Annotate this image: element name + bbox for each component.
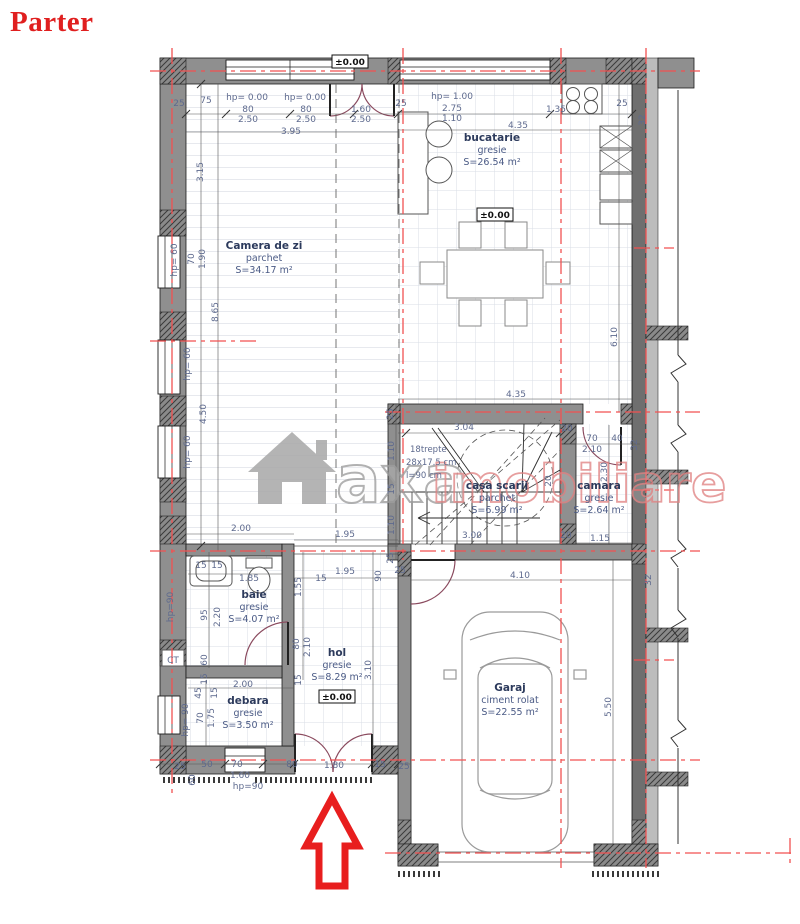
dimension-label: hp= 60 <box>183 347 193 381</box>
room-area: S=3.50 m² <box>222 720 273 731</box>
dimension-label: 3.15 <box>196 162 206 182</box>
dimension-label: 15 <box>294 674 304 685</box>
dimension-label: 80 <box>300 105 312 115</box>
dimension-label: hp=90 <box>233 782 264 792</box>
dimension-label: 15 <box>211 561 222 571</box>
dimension-label: 1.60 <box>230 771 250 781</box>
dimension-label: 3.10 <box>364 660 374 680</box>
room-finish: gresie <box>584 493 613 504</box>
room-name: baie <box>241 589 266 601</box>
room-area: S=8.29 m² <box>311 672 362 683</box>
dimension-label: 4.50 <box>199 404 209 424</box>
dimension-label: 1.95 <box>335 567 355 577</box>
dimension-label: 2.20 <box>213 607 223 627</box>
dimension-label: 60 <box>188 774 198 786</box>
dimension-label: 80 <box>286 760 298 770</box>
dimension-label: 25 <box>398 762 409 772</box>
chair <box>459 222 481 248</box>
dimension-label: hp= 0.00 <box>284 93 326 103</box>
room-area: S=2.64 m² <box>573 505 624 516</box>
room-area: S=6.99 m² <box>471 505 522 516</box>
stair-note: 18trepte <box>410 445 447 455</box>
dimension-label: 80 <box>242 105 254 115</box>
dimension-label: 5.50 <box>604 697 614 717</box>
level-marker: ±0.00 <box>480 211 510 221</box>
floorplan-page: Parter <box>0 0 800 924</box>
dimension-label: 80 <box>292 638 302 650</box>
dimension-label: 95 <box>200 609 210 620</box>
room-finish: parchet <box>479 493 516 504</box>
room-finish: gresie <box>239 602 268 613</box>
chair <box>546 262 570 284</box>
dining-table <box>447 250 543 298</box>
dimension-label: 20 <box>561 424 573 434</box>
dimension-label: 3.04 <box>454 423 474 433</box>
dimension-label: 2.30 <box>600 462 610 482</box>
dimension-label: 32 <box>638 114 648 125</box>
dimension-label: 1.90 <box>198 249 208 269</box>
room-name: Garaj <box>494 682 526 694</box>
dimension-label: CT <box>167 656 179 666</box>
dimension-label: 4.10 <box>510 571 530 581</box>
dimension-label: 2.50 <box>296 115 316 125</box>
dimension-label: hp=90 <box>166 592 176 623</box>
dimension-label: 15 <box>195 561 206 571</box>
room-area: S=26.54 m² <box>463 157 520 168</box>
dimension-label: 50 <box>201 760 213 770</box>
room-finish: gresie <box>477 145 506 156</box>
dimension-label: 1.10 <box>387 441 397 461</box>
dimension-label: 70 <box>196 712 206 724</box>
level-marker: ±0.00 <box>322 693 352 703</box>
dimension-label: 1.15 <box>590 534 610 544</box>
dimension-label: 2.75 <box>442 104 462 114</box>
dimension-label: 25 <box>386 552 396 563</box>
level-marker: ±0.00 <box>335 58 365 68</box>
dimension-label: 70 <box>586 434 598 444</box>
dimension-label: 25 <box>394 566 405 576</box>
dimension-label: 40 <box>611 434 623 444</box>
room-area: S=4.07 m² <box>228 614 279 625</box>
dimension-label: 1.10 <box>442 114 462 124</box>
dimension-label: 2.00 <box>233 680 253 690</box>
chair <box>505 300 527 326</box>
dimension-label: 60 <box>200 654 210 666</box>
dimension-label: hp= 90 <box>181 703 191 737</box>
dimension-label: 25 <box>173 99 184 109</box>
dimension-label: 20 <box>544 475 554 487</box>
floorplan-drawing: axa imobiliare 2575hp= 0.00hp= 0.00802.5… <box>0 0 800 924</box>
dimension-label: 6.10 <box>610 327 620 347</box>
dimension-label: 15 <box>374 760 385 770</box>
dimension-label: 15 <box>315 574 326 584</box>
room-finish: ciment rolat <box>481 695 539 706</box>
room-finish: gresie <box>322 660 351 671</box>
dimension-label: 2.50 <box>351 115 371 125</box>
dimension-label: 45 <box>194 687 204 698</box>
room-name: hol <box>328 647 346 659</box>
cabinet <box>600 174 632 200</box>
dimension-label: 4.35 <box>508 121 528 131</box>
dimension-label: hp= 60 <box>183 435 193 469</box>
room-name: debara <box>227 695 269 707</box>
dimension-label: 4.35 <box>506 390 526 400</box>
room-finish: gresie <box>233 708 262 719</box>
room-name: bucatarie <box>464 132 520 144</box>
dimension-label: 20 <box>560 531 572 541</box>
room-name: casa scarii <box>466 480 528 492</box>
room-area: S=22.55 m² <box>481 707 538 718</box>
dimension-label: 2.10 <box>582 445 602 455</box>
dimension-label: 90 <box>374 570 384 582</box>
dimension-label: 2.50 <box>238 115 258 125</box>
dimension-label: 25 <box>616 99 627 109</box>
dimension-label: 2.10 <box>303 637 313 657</box>
dimension-label: hp= 60 <box>170 243 180 277</box>
dimension-label: 1.55 <box>294 577 304 597</box>
dimension-label: 70 <box>231 760 243 770</box>
dimension-label: hp= 0.00 <box>226 93 268 103</box>
dimension-label: 3.00 <box>462 531 482 541</box>
dimension-label: 1.75 <box>207 708 217 728</box>
kitchen-sink <box>426 157 452 183</box>
dimension-label: 25 <box>174 762 185 772</box>
dimension-label: 1.60 <box>351 105 371 115</box>
dimension-label: 8.65 <box>211 302 221 322</box>
dimension-label: 32 <box>630 439 640 450</box>
dimension-label: 15 <box>200 673 210 684</box>
chair <box>505 222 527 248</box>
stair-note: 28x17.5 cm <box>406 458 456 468</box>
dimension-label: 1.35 <box>546 105 566 115</box>
kitchen-sink <box>426 121 452 147</box>
cabinet <box>600 202 632 224</box>
dimension-label: hp= 1.00 <box>431 92 473 102</box>
dimension-label: 1.85 <box>239 574 259 584</box>
dimension-label: 70 <box>187 253 197 265</box>
room-finish: parchet <box>246 253 283 264</box>
dimension-label: 25 <box>395 99 406 109</box>
car <box>444 612 586 852</box>
dimension-label: 1.95 <box>335 530 355 540</box>
dimension-label: 75 <box>200 96 211 106</box>
room-name: camara <box>577 480 621 492</box>
dimension-label: 3.95 <box>281 127 301 137</box>
room-name: Camera de zi <box>226 240 303 252</box>
stair-note: l=90 cm <box>406 471 442 481</box>
dimension-label: 1.80 <box>324 761 344 771</box>
dimension-label: 15 <box>210 687 220 698</box>
dimension-label: 2.00 <box>231 524 251 534</box>
page-title: Parter <box>10 6 94 39</box>
dimension-label: 15 <box>387 483 397 494</box>
chair <box>420 262 444 284</box>
chair <box>459 300 481 326</box>
dimension-label: 32 <box>644 574 654 585</box>
room-area: S=34.17 m² <box>235 265 292 276</box>
dimension-label: 1.10 <box>387 515 397 535</box>
entrance-arrow <box>306 798 358 886</box>
dimension-label: 25 <box>386 408 396 419</box>
